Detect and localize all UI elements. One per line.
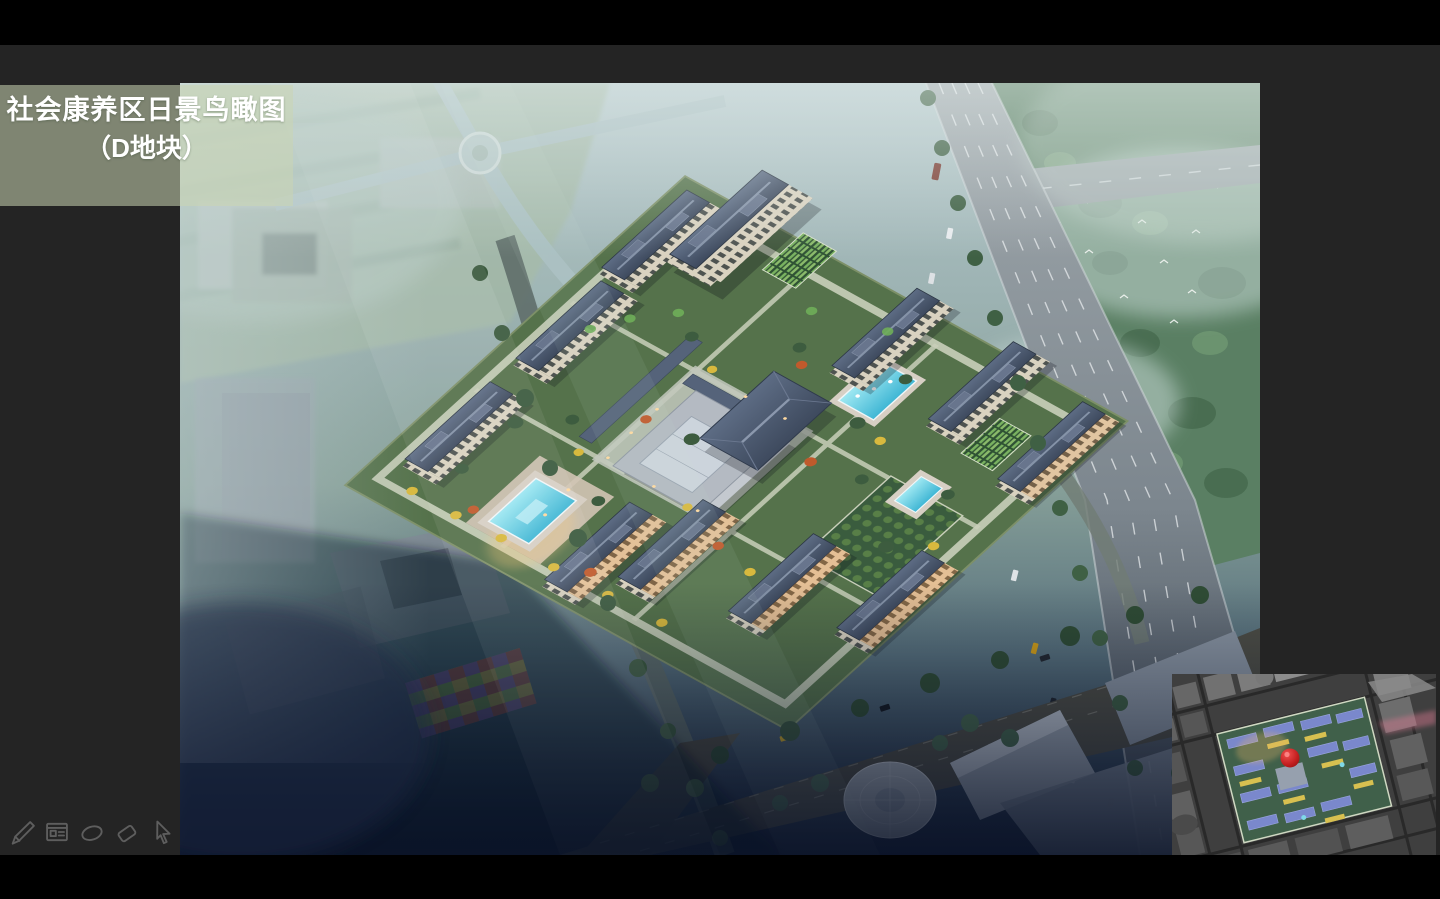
location-inset-map xyxy=(1172,674,1436,855)
site-marker-dot xyxy=(1281,749,1300,768)
ellipse-annotation-icon[interactable] xyxy=(78,818,106,846)
eraser-icon[interactable] xyxy=(113,818,141,846)
bottom-letterbox-bar xyxy=(0,855,1440,899)
slide-title-line1: 社会康养区日景鸟瞰图 xyxy=(0,92,293,128)
slide-title-line2: （D地块） xyxy=(0,128,293,168)
slide-panel-icon[interactable] xyxy=(43,818,71,846)
cursor-arrow-icon[interactable] xyxy=(148,818,176,846)
slide-title-overlay: 社会康养区日景鸟瞰图 （D地块） xyxy=(0,85,293,206)
slide-canvas[interactable] xyxy=(180,83,1260,855)
aerial-rendering xyxy=(180,83,1260,855)
annotation-toolbar xyxy=(8,818,176,846)
pen-icon[interactable] xyxy=(8,818,36,846)
top-letterbox-bar xyxy=(0,0,1440,45)
